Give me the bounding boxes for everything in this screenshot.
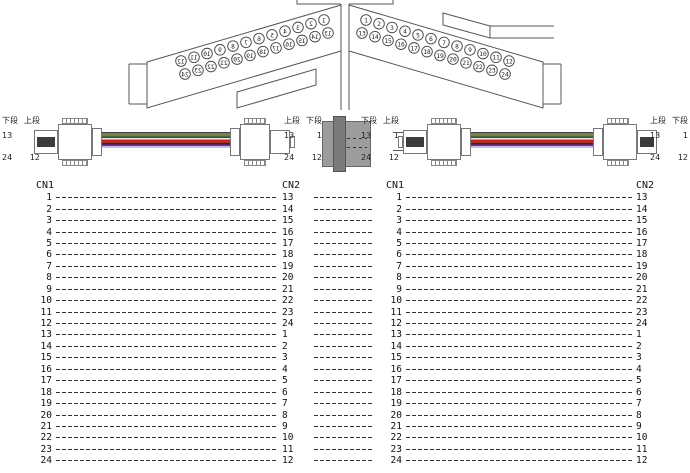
- cn1-pin: 22: [36, 432, 52, 443]
- adapter-link-row: [314, 203, 372, 214]
- cn2-pin: 24: [636, 318, 658, 329]
- cn2-pin: 12: [282, 455, 304, 466]
- pin-map-row: 175: [386, 375, 658, 386]
- cn1-pin: 6: [36, 249, 52, 260]
- cn2-pin: 20: [282, 272, 304, 283]
- cn2-pin: 10: [636, 432, 658, 443]
- cn2-pin: 19: [282, 261, 304, 272]
- cn2-pin: 4: [636, 364, 658, 375]
- pin-map-row: 186: [386, 386, 658, 397]
- pin-number: 12: [389, 153, 399, 162]
- cn2-pin: 9: [282, 421, 304, 432]
- pin-circle-number: 5: [416, 32, 420, 39]
- pin-map-row: 113: [36, 192, 304, 203]
- cn2-pin: 22: [636, 295, 658, 306]
- pin-circle-number: 13: [358, 30, 366, 37]
- wire-dash-line: [56, 449, 278, 450]
- pin-map-row: 921: [386, 284, 658, 295]
- adapter-dash-line: [314, 415, 372, 416]
- wire-dash-line: [56, 232, 278, 233]
- pin-map-row: 820: [386, 272, 658, 283]
- cn1-pin: 13: [386, 329, 402, 340]
- cn1-pin: 1: [36, 192, 52, 203]
- adapter-link-row: [314, 284, 372, 295]
- adapter-dash-line: [314, 232, 372, 233]
- table2-header-cn2: CN2: [636, 180, 658, 192]
- adapter-link-row: [314, 432, 372, 443]
- pin-map-row: 2311: [386, 444, 658, 455]
- cn1-pin: 20: [36, 410, 52, 421]
- wire-dash-line: [406, 415, 632, 416]
- wire-dash-line: [56, 437, 278, 438]
- cn2-pin: 13: [636, 192, 658, 203]
- pin-map-row: 1224: [36, 318, 304, 329]
- pin-map-row: 197: [386, 398, 658, 409]
- pin-circle-number: 12: [177, 58, 185, 65]
- pin-map-row: 1022: [386, 295, 658, 306]
- wire-dash-line: [406, 220, 632, 221]
- pin1-leader-line: [393, 132, 403, 133]
- pin-circle-number: 2: [377, 21, 381, 28]
- adapter-link-lines: [314, 192, 372, 467]
- wire-dash-line: [406, 300, 632, 301]
- wire-dash-line: [56, 403, 278, 404]
- adapter-dash-line: [314, 266, 372, 267]
- cn2-pin: 7: [282, 398, 304, 409]
- pin-map-row: 618: [386, 249, 658, 260]
- cn1-pin: 13: [36, 329, 52, 340]
- wire-dash-line: [406, 232, 632, 233]
- cn1-pin: 7: [36, 261, 52, 272]
- wire-dash-line: [56, 254, 278, 255]
- wire-dash-line: [406, 357, 632, 358]
- cn1-pin: 15: [386, 352, 402, 363]
- pin-map-row: 1224: [386, 318, 658, 329]
- cable2-left-housing: [427, 124, 461, 160]
- connector-face-views: 121110987654321 242322212019181716151413…: [0, 0, 690, 115]
- pin-number: 1: [683, 131, 688, 140]
- adapter-dash-line: [314, 357, 372, 358]
- adapter-link-row: [314, 306, 372, 317]
- cn2-pin: 23: [636, 307, 658, 318]
- cn2-pin: 19: [636, 261, 658, 272]
- pin-number: 24: [284, 153, 294, 162]
- cn2-pin: 4: [282, 364, 304, 375]
- pin-map-row: 131: [386, 329, 658, 340]
- wire-dash-line: [56, 380, 278, 381]
- pin-circle-number: 12: [505, 58, 513, 65]
- cable1-right-end-labels: 上段下段 131 2412: [284, 116, 322, 162]
- pin-circle-number: 5: [270, 32, 274, 39]
- pin-map-row: 208: [386, 409, 658, 420]
- wire-dash-line: [56, 197, 278, 198]
- pin-circle-number: 15: [384, 38, 392, 45]
- adapter-dash-line: [314, 209, 372, 210]
- cn1-pin: 8: [36, 272, 52, 283]
- row-label: 上段: [284, 116, 300, 125]
- pin-circle-number: 17: [272, 45, 280, 52]
- pin-number: 12: [312, 153, 322, 162]
- pin-circle-number: 15: [298, 38, 306, 45]
- pin-circle-number: 22: [207, 64, 215, 71]
- adapter-dash-line: [314, 426, 372, 427]
- cn2-pin: 3: [636, 352, 658, 363]
- wire-dash-line: [406, 243, 632, 244]
- cn2-pin: 8: [636, 410, 658, 421]
- cn1-pin: 19: [36, 398, 52, 409]
- cn1-pin: 11: [386, 307, 402, 318]
- cn2-pin: 6: [636, 387, 658, 398]
- adapter-link-row: [314, 455, 372, 466]
- adapter-link-row: [314, 238, 372, 249]
- cn2-pin: 20: [636, 272, 658, 283]
- wire-dash-line: [56, 220, 278, 221]
- wire-dash-line: [56, 277, 278, 278]
- pin-circle-number: 16: [285, 42, 293, 49]
- wire-dash-line: [56, 369, 278, 370]
- pin-map-row: 921: [36, 284, 304, 295]
- wire-dash-line: [56, 426, 278, 427]
- cn2-pin: 9: [636, 421, 658, 432]
- cn2-pin: 24: [282, 318, 304, 329]
- table1-rows: 1132143154165176187198209211022112312241…: [36, 192, 304, 467]
- pin-map-row: 2311: [36, 444, 304, 455]
- adapter-link-row: [314, 364, 372, 375]
- adapter-dash-line: [314, 312, 372, 313]
- pin-map-row: 208: [36, 409, 304, 420]
- adapter-dash-line: [314, 437, 372, 438]
- cable2-left-serration-bottom: [431, 160, 457, 166]
- wire-dash-line: [56, 266, 278, 267]
- wire-dash-line: [406, 426, 632, 427]
- pin-map-row: 214: [386, 203, 658, 214]
- cn2-pin: 18: [282, 249, 304, 260]
- cn1-pin: 7: [386, 261, 402, 272]
- adapter-link-row: [314, 272, 372, 283]
- pin-map-row: 219: [36, 421, 304, 432]
- adapter-dash-line: [314, 403, 372, 404]
- pin-circle-number: 13: [324, 30, 332, 37]
- adapter-link-row: [314, 295, 372, 306]
- wire-dash-line: [406, 197, 632, 198]
- pin-circle-number: 21: [220, 60, 228, 67]
- adapter-dash-line: [314, 220, 372, 221]
- pin-circle-number: 11: [190, 55, 198, 62]
- wire-dash-line: [406, 323, 632, 324]
- pin-map-row: 219: [386, 421, 658, 432]
- pin-circle-number: 8: [455, 44, 459, 51]
- row-label: 下段: [2, 116, 18, 125]
- cable2-ribbon: [471, 132, 593, 148]
- adapter-dash-line: [314, 334, 372, 335]
- cn1-pin: 18: [36, 387, 52, 398]
- cn2-pin: 5: [636, 375, 658, 386]
- pin-map-row: 214: [36, 203, 304, 214]
- cn2-pin: 2: [282, 341, 304, 352]
- pin-circle-number: 19: [246, 53, 254, 60]
- pin-map-row: 153: [386, 352, 658, 363]
- cn2-pin: 21: [282, 284, 304, 295]
- cn1-pin: 18: [386, 387, 402, 398]
- center-spine-lines: [341, 4, 349, 110]
- cn1-pin: 20: [386, 410, 402, 421]
- adapter-dash-line: [314, 323, 372, 324]
- cable1-left-boot: [34, 130, 58, 154]
- cn1-pin: 15: [36, 352, 52, 363]
- cn2-pin: 17: [282, 238, 304, 249]
- pin-circle-number: 14: [311, 34, 319, 41]
- cn2-pin: 16: [282, 227, 304, 238]
- cn2-pin: 18: [636, 249, 658, 260]
- pin-map-row: 153: [36, 352, 304, 363]
- cn1-pin: 21: [36, 421, 52, 432]
- pin-circle-number: 6: [257, 36, 261, 43]
- cn2-pin: 1: [282, 329, 304, 340]
- pin-circle-number: 23: [488, 68, 496, 75]
- cn1-pin: 10: [386, 295, 402, 306]
- adapter-link-row: [314, 341, 372, 352]
- pin-number: 24: [361, 153, 371, 162]
- adapter-dash-line: [314, 254, 372, 255]
- cn1-pin: 1: [386, 192, 402, 203]
- cn2-pin: 6: [282, 387, 304, 398]
- row-label: 下段: [361, 116, 377, 125]
- pin-circle-number: 3: [390, 25, 394, 32]
- adapter-link-row: [314, 386, 372, 397]
- adapter-link-row: [314, 352, 372, 363]
- cn1-pin: 17: [36, 375, 52, 386]
- cn1-pin: 2: [386, 204, 402, 215]
- wire-dash-line: [56, 312, 278, 313]
- cn1-pin: 16: [386, 364, 402, 375]
- cn2-pin: 21: [636, 284, 658, 295]
- row-label: 上段: [650, 116, 666, 125]
- cn1-pin: 9: [36, 284, 52, 295]
- wire-dash-line: [406, 277, 632, 278]
- pin-circle-number: 8: [231, 43, 235, 50]
- pin-map-row: 719: [386, 261, 658, 272]
- cn2-pin: 23: [282, 307, 304, 318]
- cn2-pin: 5: [282, 375, 304, 386]
- pin-circle-number: 4: [403, 29, 407, 36]
- pin-number: 13: [2, 131, 12, 140]
- apex-key-rect: [297, 0, 393, 4]
- adapter-link-row: [314, 215, 372, 226]
- table2-header-cn1: CN1: [386, 180, 404, 192]
- cn1-pin: 3: [36, 215, 52, 226]
- pin-map-row: 164: [386, 364, 658, 375]
- cn2-pin: 11: [282, 444, 304, 455]
- pin-map-row: 719: [36, 261, 304, 272]
- cn1-pin: 5: [386, 238, 402, 249]
- pin-number: 13: [650, 131, 660, 140]
- pin-map-row: 2412: [386, 455, 658, 466]
- pin-circle-number: 20: [233, 56, 241, 63]
- cn1-pin: 16: [36, 364, 52, 375]
- pin-map-row: 416: [36, 226, 304, 237]
- pin-circle-number: 10: [479, 51, 487, 58]
- adapter-coupler-bar: [333, 116, 346, 172]
- cn2-pin: 1: [636, 329, 658, 340]
- cable2-right-end-labels: 上段下段 131 2412: [650, 116, 688, 162]
- pin-circle-number: 11: [492, 55, 500, 62]
- cn1-pin: 4: [386, 227, 402, 238]
- adapter-link-row: [314, 329, 372, 340]
- adapter-dash-line: [314, 197, 372, 198]
- pin-number: 12: [30, 153, 40, 162]
- wire-dash-line: [56, 300, 278, 301]
- adapter-link-row: [314, 226, 372, 237]
- cn1-pin: 24: [386, 455, 402, 466]
- wire-dash-line: [56, 415, 278, 416]
- wire-dash-line: [56, 243, 278, 244]
- wire-dash-line: [406, 403, 632, 404]
- pin-circle-number: 2: [309, 21, 313, 28]
- pin-circle-number: 24: [181, 71, 189, 78]
- wire-dash-line: [56, 346, 278, 347]
- mpo-cable-wiring-diagram: 121110987654321 242322212019181716151413…: [0, 0, 690, 473]
- cable2-left-ferrule: [461, 128, 471, 156]
- left-key-step: [237, 69, 316, 108]
- pin-circle-number: 7: [442, 40, 446, 47]
- cn1-pin: 3: [386, 215, 402, 226]
- cn2-pin: 7: [636, 398, 658, 409]
- cn1-pin: 19: [386, 398, 402, 409]
- pin-circle-number: 16: [397, 42, 405, 49]
- adapter-dash-line: [314, 243, 372, 244]
- pin-map-row: 315: [36, 215, 304, 226]
- cn2-pin: 15: [282, 215, 304, 226]
- pin-map-row: 142: [36, 341, 304, 352]
- boot-band: [406, 137, 424, 147]
- cable-assembly-row: 下段上段 131 2412 上段下段 131 2412 下段上段 1: [0, 110, 690, 182]
- pin-circle-number: 18: [423, 49, 431, 56]
- cn2-pin: 14: [282, 204, 304, 215]
- pin-map-row: 186: [36, 386, 304, 397]
- adapter-link-row: [314, 375, 372, 386]
- pin-map-row: 517: [36, 238, 304, 249]
- adapter-dash-line: [314, 300, 372, 301]
- pin-number: 24: [650, 153, 660, 162]
- cn2-pin: 12: [636, 455, 658, 466]
- row-label: 下段: [672, 116, 688, 125]
- cn1-pin: 14: [36, 341, 52, 352]
- cable1-ribbon: [102, 132, 230, 148]
- pin12-leader-line: [393, 150, 403, 151]
- cn1-pin: 23: [386, 444, 402, 455]
- adapter-dash-line: [314, 277, 372, 278]
- right-key-step-lines: [490, 26, 554, 38]
- pin-circle-number: 7: [244, 40, 248, 47]
- adapter-link-row: [314, 444, 372, 455]
- adapter-dash-line: [314, 460, 372, 461]
- wire-dash-line: [406, 334, 632, 335]
- pin-circle-number: 10: [203, 51, 211, 58]
- pin-number: 24: [2, 153, 12, 162]
- cable1-right-serration-bottom: [244, 160, 266, 166]
- adapter-link-row: [314, 192, 372, 203]
- wire-dash-line: [406, 312, 632, 313]
- wire-dash-line: [56, 323, 278, 324]
- cn1-pin: 4: [36, 227, 52, 238]
- pin-map-row: 175: [36, 375, 304, 386]
- adapter-link-row: [314, 421, 372, 432]
- pin-map-row: 131: [36, 329, 304, 340]
- pin-circle-number: 20: [449, 57, 457, 64]
- pin-number: 13: [284, 131, 294, 140]
- cn2-pin: 13: [282, 192, 304, 203]
- pin-map-row: 113: [386, 192, 658, 203]
- adapter-dash-line: [314, 289, 372, 290]
- cn1-pin: 21: [386, 421, 402, 432]
- pin-map-row: 1123: [36, 306, 304, 317]
- pin-circle-number: 3: [296, 25, 300, 32]
- row-label: 下段: [306, 116, 322, 125]
- cable1-right-ferrule: [230, 128, 240, 156]
- wire-dash-line: [56, 357, 278, 358]
- cn1-pin: 12: [386, 318, 402, 329]
- cable2-right-housing: [603, 124, 637, 160]
- row-label: 上段: [383, 116, 399, 125]
- adapter-dash-line: [314, 380, 372, 381]
- wire-dash-line: [406, 209, 632, 210]
- cn2-pin: 16: [636, 227, 658, 238]
- boot-band: [37, 137, 55, 147]
- pin-circle-number: 6: [429, 36, 433, 43]
- cn1-pin: 24: [36, 455, 52, 466]
- cn2-pin: 22: [282, 295, 304, 306]
- wire-dash-line: [406, 266, 632, 267]
- cn1-pin: 6: [386, 249, 402, 260]
- cn1-pin: 2: [36, 204, 52, 215]
- adapter-link-row: [314, 261, 372, 272]
- pin-map-row: 315: [386, 215, 658, 226]
- adapter-dash-line: [314, 369, 372, 370]
- cn2-pin: 10: [282, 432, 304, 443]
- pin-circle-number: 1: [364, 17, 368, 24]
- wire-dash-line: [56, 289, 278, 290]
- pin-map-row: 416: [386, 226, 658, 237]
- right-body-lines: [543, 64, 561, 104]
- pin-map-row: 517: [386, 238, 658, 249]
- adapter-dash-line: [314, 392, 372, 393]
- cn2-pin: 8: [282, 410, 304, 421]
- wire-dash-line: [56, 334, 278, 335]
- pin-circle-number: 18: [259, 49, 267, 56]
- cn1-pin: 23: [36, 444, 52, 455]
- cn2-pin: 17: [636, 238, 658, 249]
- adapter-dash-line: [314, 346, 372, 347]
- pin-map-row: 197: [36, 398, 304, 409]
- wire-dash-line: [406, 289, 632, 290]
- wire-dash-line: [406, 460, 632, 461]
- adapter-dash-line: [314, 449, 372, 450]
- pin-map-row: 2210: [386, 432, 658, 443]
- cn2-pin: 15: [636, 215, 658, 226]
- adapter-link-row: [314, 409, 372, 420]
- pin-map-row: 2412: [36, 455, 304, 466]
- pin-circle-number: 4: [283, 29, 287, 36]
- pin-map-row: 618: [36, 249, 304, 260]
- adapter-link-row: [314, 318, 372, 329]
- wire-dash-line: [406, 449, 632, 450]
- pin-map-row: 1123: [386, 306, 658, 317]
- cn2-pin: 2: [636, 341, 658, 352]
- pin-circle-number: 19: [436, 53, 444, 60]
- pin-number: 12: [678, 153, 688, 162]
- table1-header-cn2: CN2: [282, 180, 304, 192]
- pin-circle-number: 9: [468, 47, 472, 54]
